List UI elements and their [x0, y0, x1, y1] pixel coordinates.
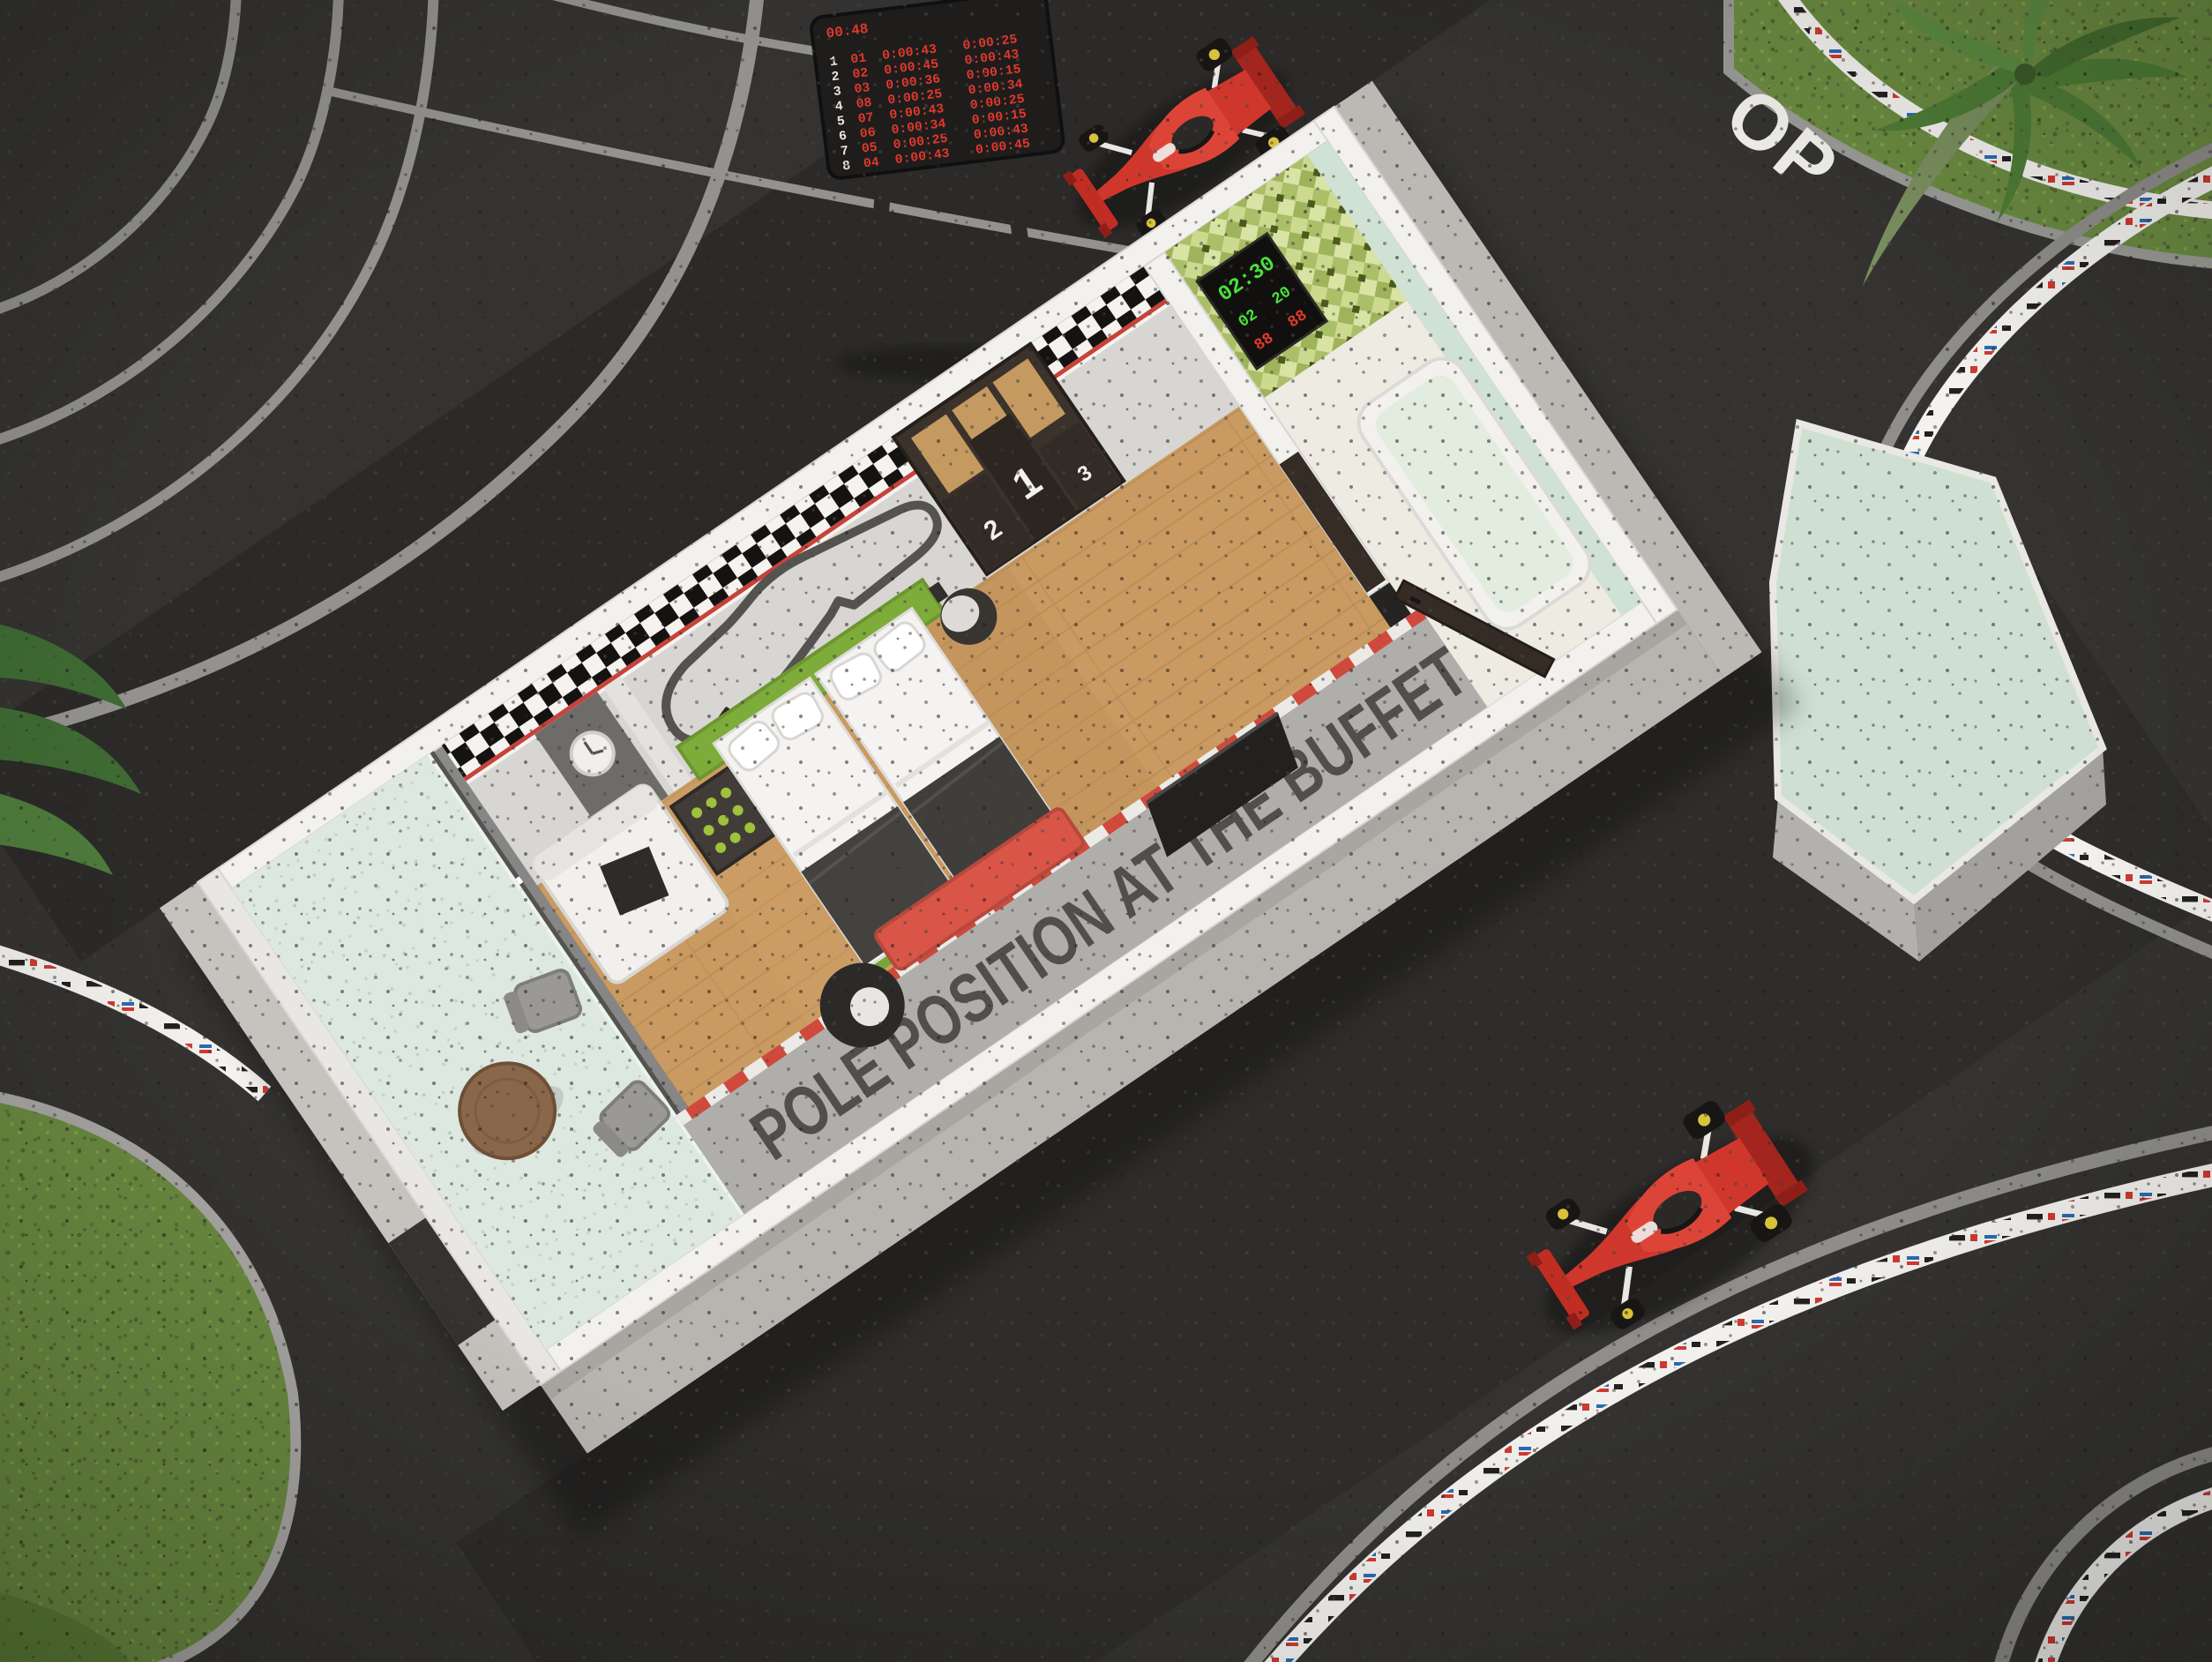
racing-hotel-room-render: OP 00:48 1 01 0:00:43 0:00:25 2 0	[0, 0, 2212, 1662]
scene-canvas: OP 00:48 1 01 0:00:43 0:00:25 2 0	[0, 0, 2212, 1662]
vignette-overlay	[0, 0, 2212, 1662]
